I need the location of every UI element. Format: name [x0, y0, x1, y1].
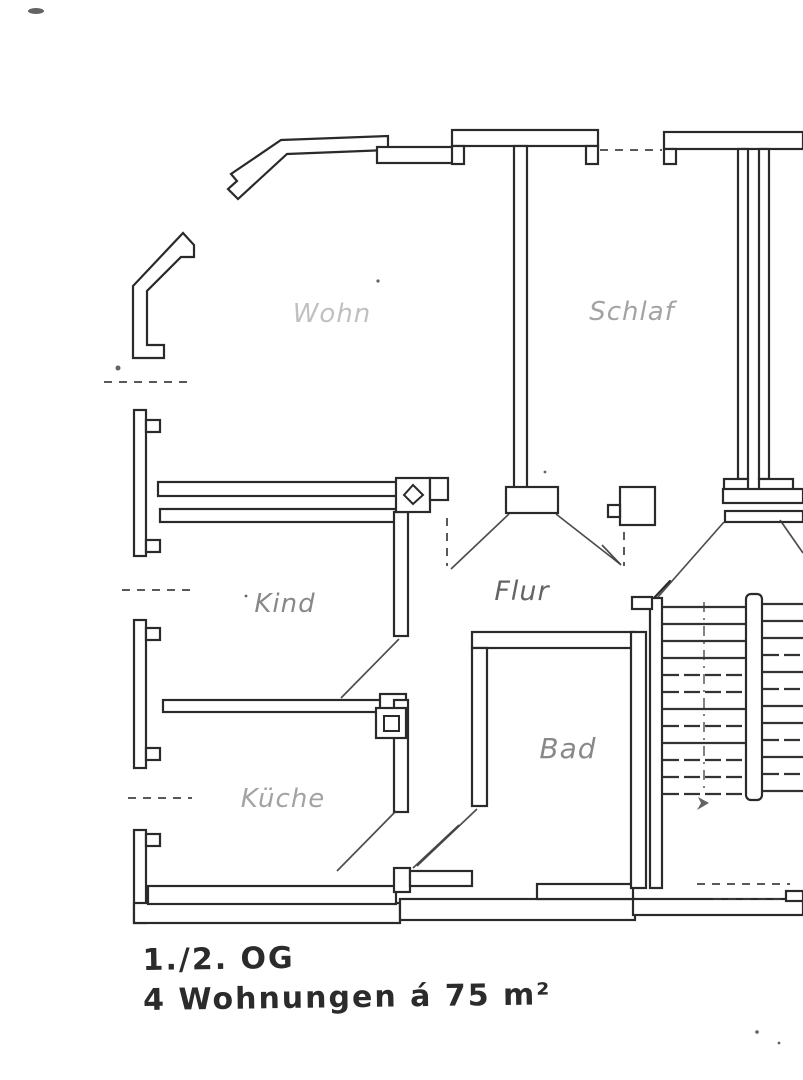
- divider-child-hall: [394, 512, 408, 636]
- window-dashes: [104, 150, 790, 899]
- wall-tab: [146, 628, 160, 640]
- living-south-wall: [158, 482, 398, 496]
- units-label: 4 Wohnungen á 75 m²: [143, 977, 552, 1018]
- scan-speck: [544, 471, 547, 474]
- plan-annotation: 1./2. OG 4 Wohnungen á 75 m²: [142, 937, 551, 1018]
- interior-walls: [158, 146, 803, 892]
- bottom-wall-right: [633, 899, 803, 915]
- door-lobby: [413, 825, 459, 868]
- room-label-bath: Bad: [539, 732, 596, 765]
- kitchen-inner-ledge: [148, 886, 396, 904]
- room-label-hallway: Flur: [494, 576, 550, 607]
- bath-east-wall: [631, 632, 646, 888]
- room-label-bedroom: Schlaf: [589, 297, 677, 327]
- party-wall-left: [738, 149, 748, 479]
- door-neighbour-partial: [780, 520, 803, 553]
- wall-tab: [146, 834, 160, 846]
- bath-north-wall: [472, 632, 635, 648]
- bottom-wall-mid: [400, 899, 635, 920]
- room-label-living: Wohn: [293, 299, 372, 329]
- top-wall-segment-2: [664, 132, 803, 149]
- stairhall-diagonal-wall: [654, 581, 670, 598]
- left-wall-segment-1: [134, 410, 146, 556]
- window-jamb: [664, 149, 676, 164]
- child-north-wall: [160, 509, 396, 522]
- left-wall-segment-2: [134, 620, 146, 768]
- floorplan-scan-page: Wohn Schlaf Kind Flur Bad Küche 1./2. OG…: [0, 0, 803, 1080]
- scan-speck: [376, 279, 379, 282]
- door-bedroom: [556, 514, 620, 564]
- entry-niche: [537, 884, 633, 899]
- wall-tab: [146, 748, 160, 760]
- chimney-flue-lower: [384, 716, 399, 731]
- bay-wall-lower: [133, 233, 194, 358]
- door-kitchen: [337, 811, 396, 871]
- room-label-kitchen: Küche: [241, 784, 326, 814]
- door-stairhall: [658, 522, 724, 597]
- stair-direction-arrow: [697, 797, 709, 810]
- room-label-child: Kind: [254, 589, 315, 619]
- scan-speck: [755, 1030, 759, 1034]
- kitchen-door-stub: [394, 868, 410, 892]
- bottom-wall-left: [134, 903, 400, 923]
- scan-speck: [245, 595, 248, 598]
- wall-tab: [146, 540, 160, 552]
- stair-north-wall-thick: [723, 489, 803, 503]
- wall-tab: [146, 420, 160, 432]
- hall-block: [620, 487, 655, 525]
- floor-label: 1./2. OG: [142, 941, 295, 978]
- chimney-stub: [430, 478, 448, 500]
- door-child: [341, 639, 399, 698]
- door-living: [451, 514, 509, 569]
- staircase: [663, 594, 803, 810]
- stair-stringer: [746, 594, 762, 800]
- window-sill-top-left: [377, 147, 462, 163]
- stair-north-wall-thin: [725, 511, 803, 522]
- divider-child-kitchen: [163, 700, 381, 712]
- stair-treads-right: [763, 604, 803, 791]
- stairhall-corner-stub: [632, 597, 652, 609]
- divider-end-block: [506, 487, 558, 513]
- stairhall-west-wall: [650, 598, 662, 888]
- scan-speck: [28, 8, 44, 14]
- wall-notch: [786, 891, 803, 901]
- bay-wall-upper: [228, 136, 388, 199]
- door-hall-small: [602, 545, 621, 565]
- party-wall-right: [759, 149, 769, 479]
- floorplan-drawing: Wohn Schlaf Kind Flur Bad Küche 1./2. OG…: [0, 0, 803, 1080]
- scan-speck: [116, 366, 121, 371]
- top-wall-segment-1: [452, 130, 598, 146]
- window-jamb: [586, 146, 598, 164]
- door-bath: [417, 809, 477, 866]
- lobby-ledge: [410, 871, 472, 886]
- hall-block-foot: [608, 505, 620, 517]
- divider-living-bedroom: [514, 146, 527, 488]
- window-jamb: [452, 146, 464, 164]
- scan-speck: [778, 1042, 781, 1045]
- bath-west-wall: [472, 648, 487, 806]
